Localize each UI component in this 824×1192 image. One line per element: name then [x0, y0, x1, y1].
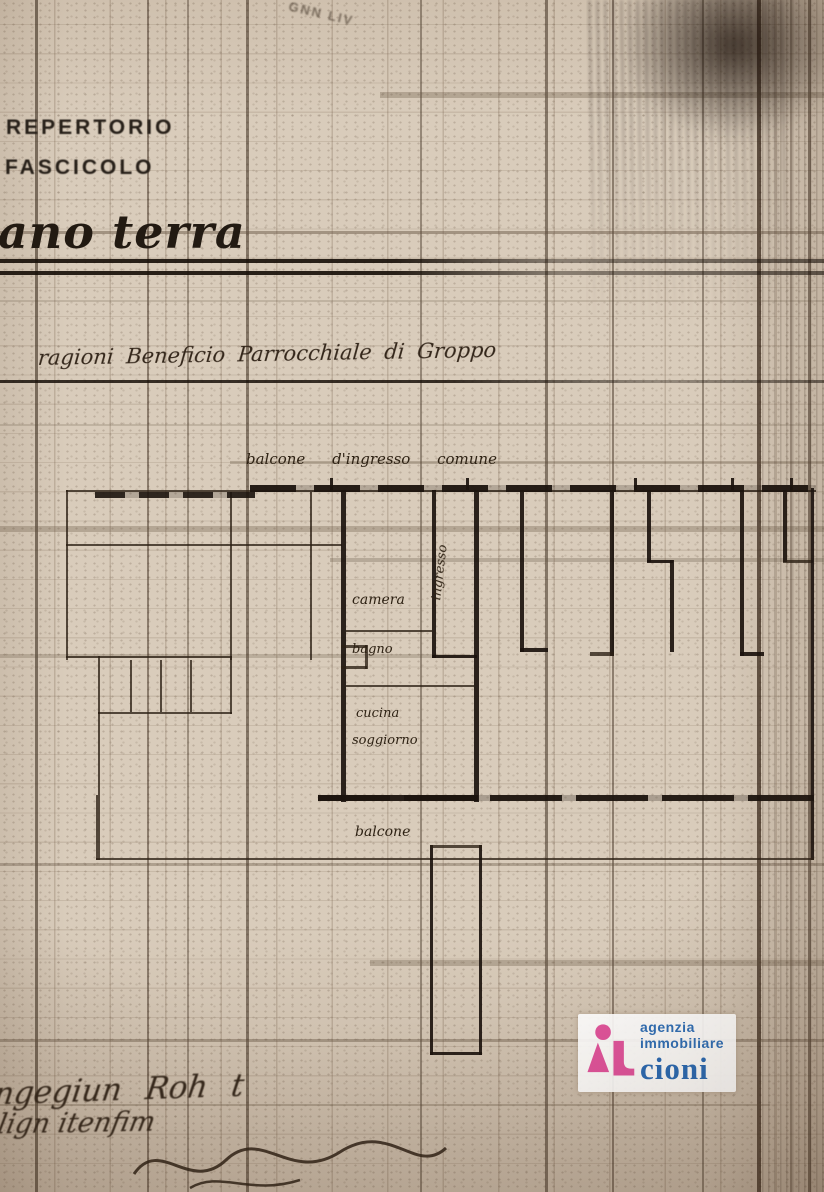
wall-segment	[670, 560, 674, 652]
wall-segment	[230, 492, 232, 660]
wall-segment	[430, 845, 433, 1055]
room-label-camera: camera	[352, 592, 405, 608]
windowed-wall	[95, 492, 255, 498]
wall-segment	[610, 490, 614, 656]
handwriting-flourish	[130, 1130, 450, 1192]
wall-segment	[432, 655, 477, 658]
wall-segment	[96, 795, 98, 860]
streak-band	[330, 558, 824, 562]
wall-segment	[98, 712, 232, 714]
streak-band	[370, 960, 824, 966]
wall-segment	[430, 845, 482, 848]
agency-name: cioni	[640, 1053, 724, 1085]
ragioni-underline	[0, 380, 824, 383]
streak-band	[0, 424, 824, 426]
room-label-soggiorno: soggiorno	[352, 733, 418, 748]
agency-logo-icon	[584, 1020, 636, 1086]
wall-segment	[66, 544, 342, 546]
balcony-entry-label: balcone d'ingresso comune	[246, 450, 497, 468]
wall-segment	[479, 845, 482, 1055]
floor-title: ano terra	[0, 205, 246, 259]
agency-line1: agenzia	[640, 1019, 724, 1035]
wall-segment	[430, 1052, 482, 1055]
wall-segment	[346, 685, 474, 687]
windowed-wall	[250, 485, 816, 492]
windowed-wall	[318, 795, 814, 801]
agency-line2: immobiliare	[640, 1035, 724, 1051]
wall-segment	[590, 652, 614, 656]
fascicolo-label: FASCICOLO	[5, 156, 155, 180]
streak-band	[0, 863, 824, 866]
repertorio-label: REPERTORIO	[6, 116, 174, 140]
wall-segment	[190, 660, 192, 712]
room-label-cucina: cucina	[356, 706, 399, 721]
wall-segment	[474, 490, 479, 802]
wall-segment	[520, 490, 524, 652]
scanned-floor-plan-document: GNN LIV REPERTORIO FASCICOLO ano terra r…	[0, 0, 824, 1192]
wall-segment	[341, 666, 367, 669]
right-edge-streaks	[762, 0, 824, 1192]
fold-line	[187, 0, 189, 1192]
wall-segment	[66, 490, 68, 660]
wall-segment	[647, 490, 651, 562]
wall-segment	[160, 660, 162, 712]
wall-segment	[520, 648, 548, 652]
wall-segment	[740, 652, 764, 656]
wall-segment	[740, 490, 744, 656]
wall-segment	[66, 656, 232, 658]
fold-line	[420, 0, 422, 1192]
room-label-balcone: balcone	[355, 824, 410, 840]
wall-segment	[98, 712, 100, 860]
wall-segment	[346, 630, 432, 632]
agency-logo-text: agenzia immobiliare cioni	[640, 1019, 724, 1085]
fold-line	[246, 0, 249, 1192]
streak-band	[0, 526, 824, 532]
wall-segment	[130, 660, 132, 712]
wall-segment	[96, 858, 814, 860]
ink-blotch-streaks	[586, 0, 786, 330]
agency-watermark: agenzia immobiliare cioni	[578, 1014, 736, 1092]
room-label-bagno: bagno	[352, 642, 393, 657]
wall-segment	[230, 656, 232, 714]
wall-segment	[98, 656, 100, 714]
wall-segment	[310, 492, 312, 660]
